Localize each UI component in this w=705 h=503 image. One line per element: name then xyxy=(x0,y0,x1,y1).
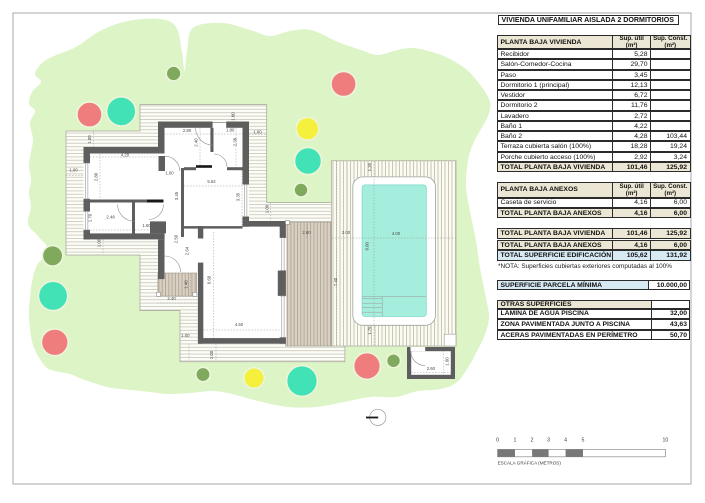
svg-text:2.40: 2.40 xyxy=(194,138,199,147)
svg-text:1.76: 1.76 xyxy=(367,326,372,335)
svg-text:1.00: 1.00 xyxy=(69,168,78,173)
svg-text:2.48: 2.48 xyxy=(106,215,115,220)
svg-text:1.70: 1.70 xyxy=(88,213,93,222)
svg-text:1.00: 1.00 xyxy=(87,135,92,144)
svg-text:1.00: 1.00 xyxy=(97,238,102,247)
svg-text:3.45: 3.45 xyxy=(174,191,179,200)
svg-text:1: 1 xyxy=(514,438,517,444)
svg-text:3: 3 xyxy=(547,438,550,444)
svg-text:1.00: 1.00 xyxy=(209,350,214,359)
svg-text:4.20: 4.20 xyxy=(121,153,130,158)
svg-text:ESCALA GRÁFICA (METROS): ESCALA GRÁFICA (METROS) xyxy=(498,460,562,466)
svg-text:7.40: 7.40 xyxy=(333,277,338,286)
svg-text:4: 4 xyxy=(564,438,567,444)
svg-text:1.80: 1.80 xyxy=(226,128,235,133)
svg-text:2.80: 2.80 xyxy=(94,172,99,181)
svg-text:1.40: 1.40 xyxy=(184,280,189,289)
svg-text:1.00: 1.00 xyxy=(253,130,262,135)
svg-text:4.50: 4.50 xyxy=(235,322,244,327)
svg-text:2.00: 2.00 xyxy=(342,230,351,235)
svg-text:2.64: 2.64 xyxy=(185,246,190,255)
svg-text:2.38: 2.38 xyxy=(233,137,238,146)
svg-text:1.60: 1.60 xyxy=(445,357,450,366)
svg-text:1.00: 1.00 xyxy=(265,204,270,213)
svg-text:1.60: 1.60 xyxy=(142,223,151,228)
svg-text:2.60: 2.60 xyxy=(302,230,311,235)
svg-text:0: 0 xyxy=(496,438,499,444)
svg-text:6.60: 6.60 xyxy=(207,275,212,284)
svg-text:1.35: 1.35 xyxy=(367,162,372,171)
svg-text:2.80: 2.80 xyxy=(183,128,192,133)
svg-text:4.00: 4.00 xyxy=(392,231,401,236)
svg-text:2.50: 2.50 xyxy=(173,234,178,243)
svg-text:3.35: 3.35 xyxy=(236,192,241,201)
svg-text:1.00: 1.00 xyxy=(181,333,190,338)
svg-text:2.60: 2.60 xyxy=(427,366,436,371)
svg-text:5: 5 xyxy=(582,438,585,444)
svg-text:1.00: 1.00 xyxy=(231,112,236,121)
svg-text:2: 2 xyxy=(531,438,534,444)
svg-text:10: 10 xyxy=(663,438,669,444)
svg-text:1.00: 1.00 xyxy=(165,170,174,175)
svg-text:8.00: 8.00 xyxy=(364,242,369,251)
svg-text:5.62: 5.62 xyxy=(207,179,216,184)
svg-text:2.40: 2.40 xyxy=(167,296,176,301)
